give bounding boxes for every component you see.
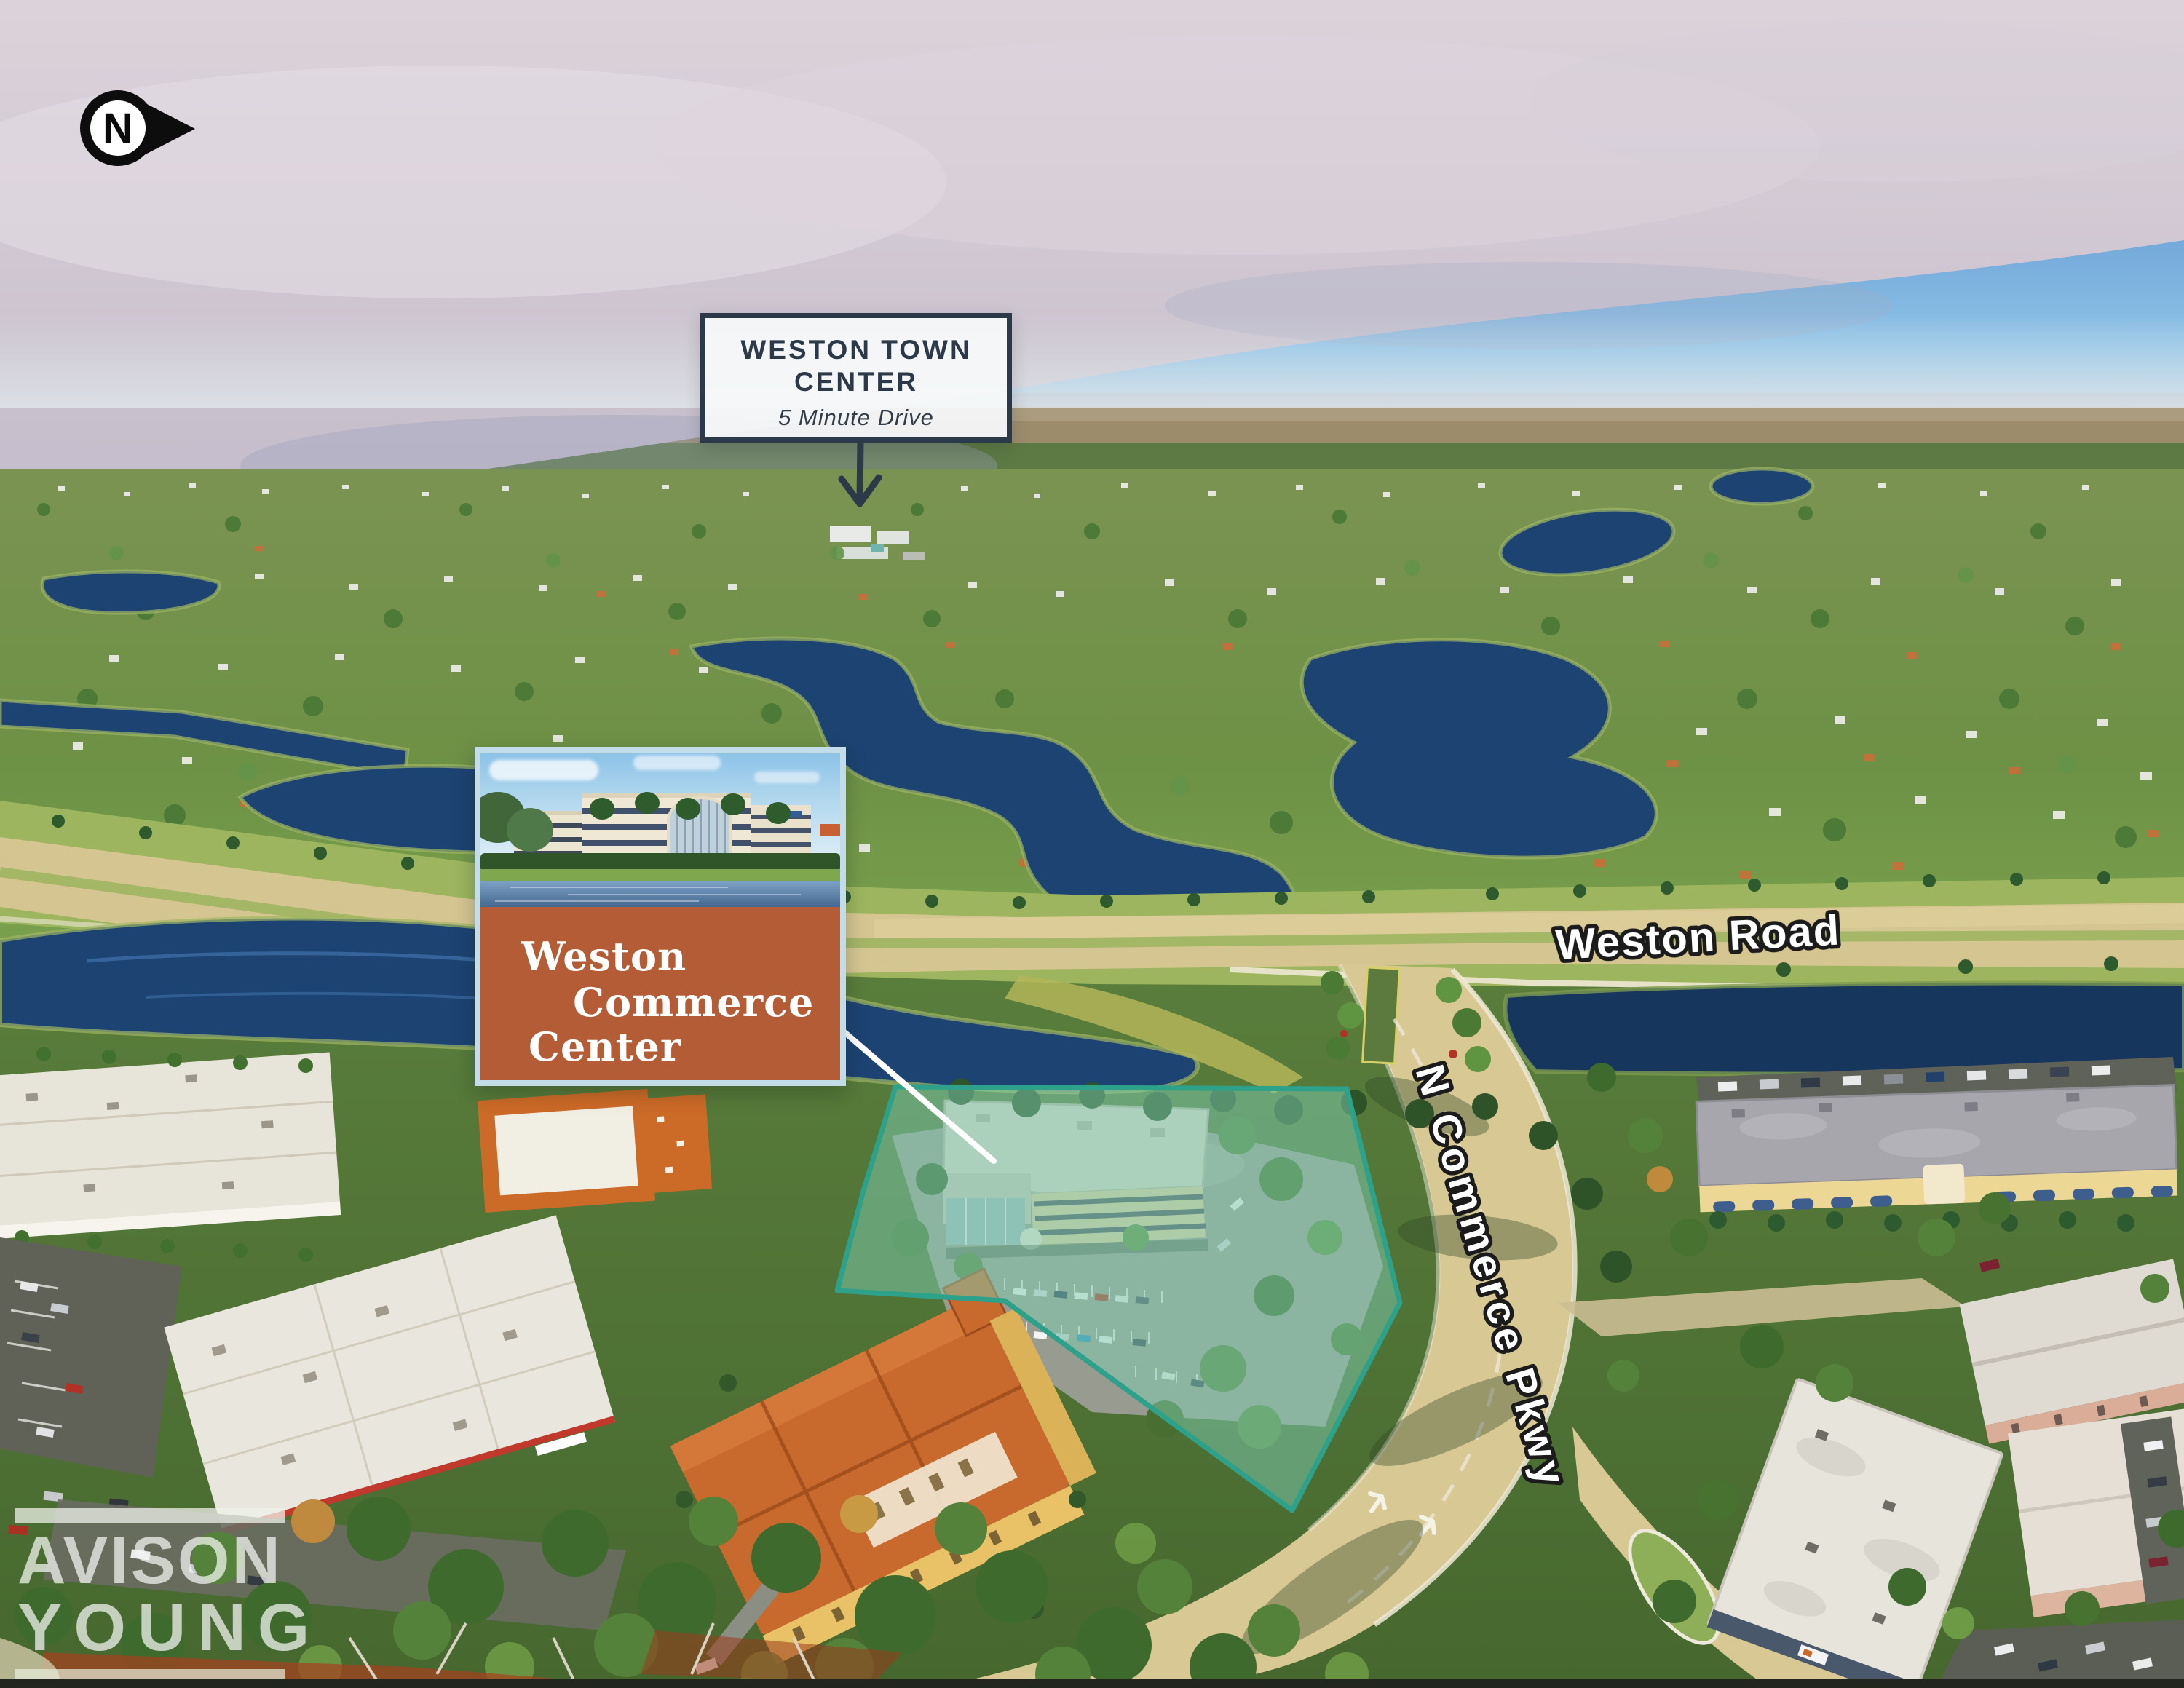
photo-ripple	[495, 900, 699, 902]
callout-title: WESTON TOWN CENTER	[705, 334, 1007, 397]
callout-subtitle: 5 Minute Drive	[705, 405, 1007, 431]
callout-arrow-icon	[834, 440, 893, 526]
photo-palm	[766, 802, 791, 824]
photo-cloud	[633, 756, 721, 770]
north-letter: N	[103, 105, 133, 152]
photo-ripple	[568, 894, 801, 895]
photo-palm	[590, 798, 614, 820]
photo-ripple	[510, 887, 728, 888]
photo-neighbor-roof	[820, 824, 840, 836]
photo-palm	[635, 792, 660, 814]
photo-tree	[507, 808, 553, 852]
property-name-line: Commerce	[573, 979, 814, 1026]
photo-cloud	[754, 772, 820, 783]
warehouse-north	[0, 1052, 341, 1240]
photo-cloud	[489, 760, 598, 780]
property-name-line: Weston	[521, 933, 687, 980]
property-name-line: Center	[529, 1023, 681, 1070]
property-card: Weston Commerce Center	[475, 747, 846, 1086]
aerial-photo-scene: Weston Road N Commerce Pkwy	[0, 0, 2184, 1688]
aerial-map: Weston Road N Commerce Pkwy N WESTON TOW…	[0, 0, 2184, 1688]
property-name-label: Weston Commerce Center	[480, 907, 840, 1080]
destination-callout: WESTON TOWN CENTER 5 Minute Drive	[700, 313, 1012, 443]
property-photo	[480, 753, 840, 907]
photo-palm	[721, 793, 745, 815]
restaurant-orange-roof	[486, 1093, 712, 1204]
yellow-office-building	[1696, 1085, 2177, 1213]
north-indicator: N	[73, 84, 204, 175]
photo-palm	[676, 798, 700, 820]
